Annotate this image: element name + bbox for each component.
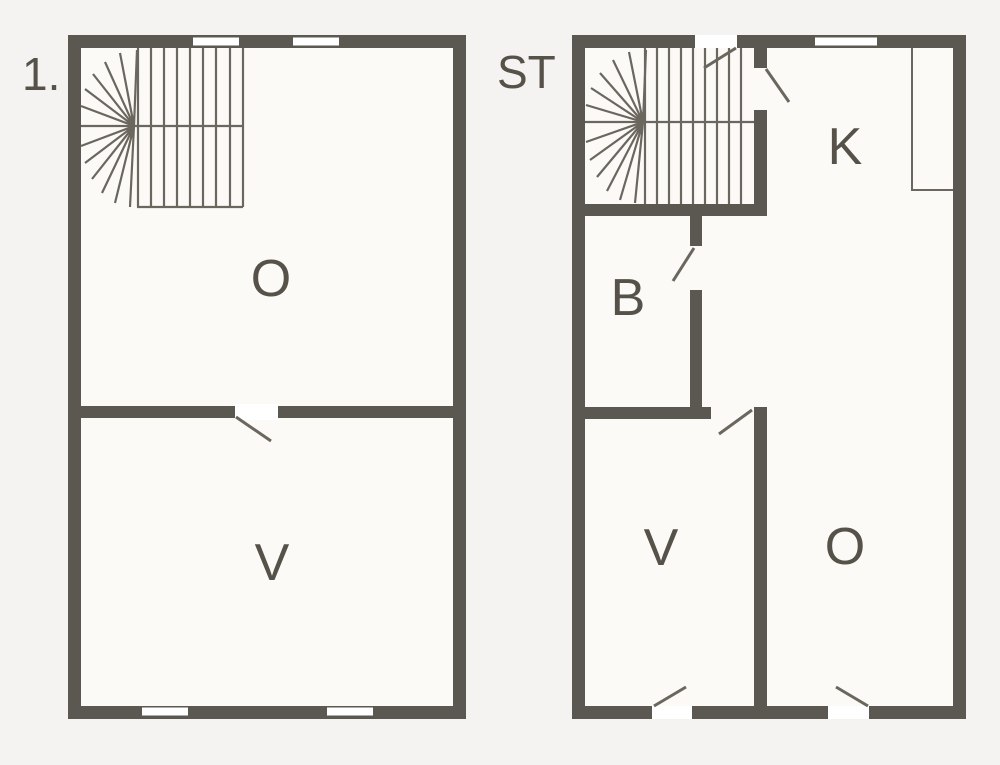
room-label: O [825,518,865,576]
room-label: O [251,250,291,308]
door-opening [235,404,278,420]
plan-ground-floor: K B V O [572,35,966,719]
door-opening [828,706,869,719]
room-label: V [644,519,679,577]
interior-wall [572,407,711,419]
interior-wall [754,407,767,706]
window [327,708,373,716]
stair-enclosure-wall [754,48,767,68]
window [815,38,877,46]
interior-wall-bath [690,216,702,246]
floor-plan-drawing: O V 1. [0,0,1000,765]
plan-title-ground-floor: ST [497,46,556,98]
door-opening [652,706,692,719]
room-label: B [611,269,646,327]
window [193,38,239,46]
room-label: V [255,534,290,592]
window [293,38,339,46]
entrance-door-opening [695,35,737,48]
stair-enclosure-wall [754,110,767,204]
interior-wall-bath [690,290,702,407]
floor-area [81,48,453,706]
stair-enclosure-wall [572,204,767,216]
plan-title-first-floor: 1. [22,48,60,100]
window [142,708,188,716]
plan-first-floor: O V [68,35,466,719]
room-label: K [828,118,863,176]
